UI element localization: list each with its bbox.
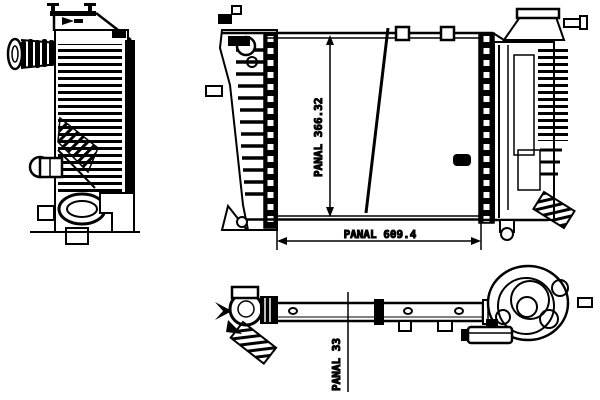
radiator-orthographic-drawing: PANAL 366.32 PANAL 609.4 — [0, 0, 600, 400]
bar-hole-2 — [404, 308, 412, 314]
crossmember-bar — [268, 299, 483, 331]
left-side-view — [8, 3, 140, 244]
right-nub — [578, 298, 592, 307]
top-clip-2 — [441, 27, 454, 40]
dimension-panel-width: PANAL 609.4 — [277, 222, 481, 250]
filler-neck — [504, 9, 587, 40]
filler-cap — [517, 9, 559, 18]
side-stub — [453, 154, 471, 166]
lower-pipe — [468, 327, 512, 343]
panel-height-label: PANAL 366.32 — [312, 98, 325, 177]
hatched-bracket — [231, 322, 276, 364]
tank-fins — [538, 45, 568, 141]
foot-left — [38, 206, 54, 220]
bar-clip-1 — [399, 321, 411, 331]
left-header-plate — [264, 33, 277, 228]
drain-plug — [59, 194, 105, 224]
bottom-view: PANAL 33 — [215, 266, 592, 392]
bar-clip-cross — [374, 299, 384, 325]
front-view: PANAL 366.32 PANAL 609.4 — [206, 6, 493, 250]
foot-center — [66, 228, 88, 244]
panel-width-label: PANAL 609.4 — [344, 228, 417, 241]
hatched-flap — [533, 192, 574, 228]
overflow-pipe — [564, 19, 580, 27]
tank-body — [493, 33, 568, 220]
left-end-assembly — [215, 287, 278, 364]
arrow-right-icon — [471, 237, 481, 245]
dimension-panel-height: PANAL 366.32 — [312, 35, 334, 217]
right-side-view — [453, 9, 587, 240]
arrow-left-icon — [277, 237, 287, 245]
core-fins — [58, 44, 122, 192]
right-header-plate — [479, 33, 494, 223]
bar-clip-2 — [438, 321, 452, 331]
tank-side-tab — [206, 86, 222, 96]
inlet-hose — [8, 39, 58, 69]
bar-hole-1 — [289, 308, 297, 314]
arrow-up-icon — [326, 35, 334, 45]
technical-drawing-canvas: PANAL 366.32 PANAL 609.4 — [0, 0, 600, 400]
bar-hole-3 — [455, 308, 463, 314]
panel-depth-label: PANAL 33 — [330, 338, 343, 391]
flow-arrow-icon — [62, 17, 74, 25]
diagonal-brace — [366, 28, 388, 213]
top-clip-1 — [396, 27, 409, 40]
